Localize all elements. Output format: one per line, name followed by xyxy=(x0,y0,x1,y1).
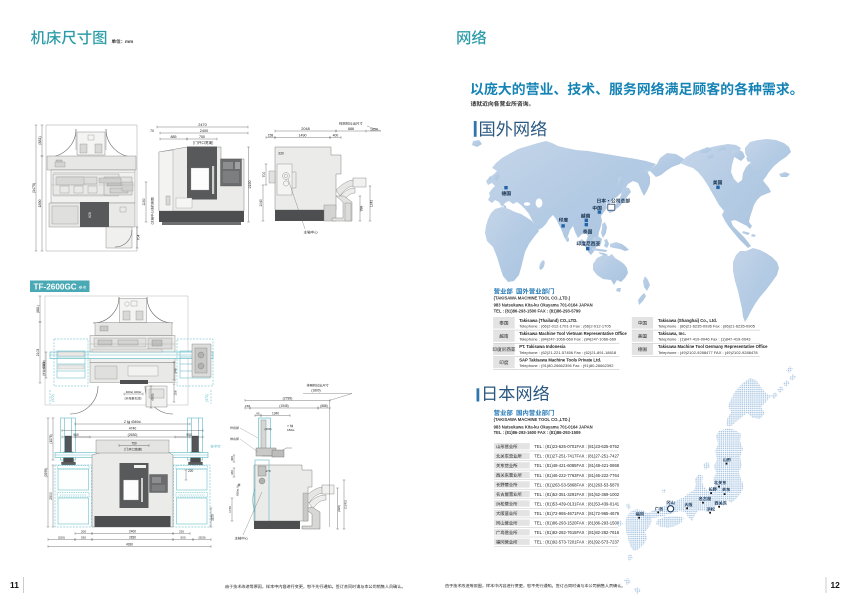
svg-text:200: 200 xyxy=(81,530,86,534)
svg-text:TEL : (81)53-439-0131: TEL : (81)53-439-0131 xyxy=(534,501,577,506)
svg-text:Takisawa (Thailand) CO.,LTD.: Takisawa (Thailand) CO.,LTD. xyxy=(519,318,577,323)
svg-text:(200): (200) xyxy=(264,427,271,431)
svg-text:950: 950 xyxy=(186,433,192,437)
svg-text:2830: 2830 xyxy=(129,536,136,540)
svg-text:(686): (686) xyxy=(320,404,327,408)
svg-text:(1076): (1076) xyxy=(49,434,53,443)
svg-text:180st.: 180st. xyxy=(287,428,295,432)
svg-text:1150: 1150 xyxy=(210,514,214,521)
svg-text:FAX : (81)263-53-5870: FAX : (81)263-53-5870 xyxy=(577,482,620,487)
svg-text:400st 400st: 400st 400st xyxy=(126,390,142,394)
svg-text:230: 230 xyxy=(179,530,184,534)
svg-text:FAX : (81)46-222-7764: FAX : (81)46-222-7764 xyxy=(577,473,620,478)
svg-text:TEL : (81)46-222-7763: TEL : (81)46-222-7763 xyxy=(534,473,577,478)
svg-text:65: 65 xyxy=(256,412,260,416)
svg-text:TEL : (81)263-53-5868: TEL : (81)263-53-5868 xyxy=(534,482,577,487)
svg-text:SAP Takisawa Machine Tools Pri: SAP Takisawa Machine Tools Private Ltd. xyxy=(519,357,601,362)
svg-text:FAX : (81)86-293-1509: FAX : (81)86-293-1509 xyxy=(577,521,620,526)
svg-text:(881): (881) xyxy=(36,305,40,313)
svg-text:2048: 2048 xyxy=(301,127,309,131)
svg-text:(885): (885) xyxy=(150,393,154,400)
svg-text:11: 11 xyxy=(10,580,19,590)
svg-text:885: 885 xyxy=(171,135,177,139)
svg-text:400: 400 xyxy=(230,456,234,461)
svg-text:1890: 1890 xyxy=(38,200,42,208)
svg-text:X: X xyxy=(236,486,240,488)
svg-text:650st.: 650st. xyxy=(236,488,240,496)
svg-text:Z: Z xyxy=(124,420,126,424)
svg-text:(881): (881) xyxy=(38,136,42,144)
svg-text:TEL : (81)52-351-3291: TEL : (81)52-351-3291 xyxy=(534,492,577,497)
svg-text:(2630): (2630) xyxy=(128,433,138,437)
svg-text:(550): (550) xyxy=(198,536,205,540)
svg-text:686: 686 xyxy=(348,127,354,131)
svg-text:1150: 1150 xyxy=(142,198,146,205)
svg-text:12: 12 xyxy=(831,580,841,590)
svg-text:Takisawa, Inc.: Takisawa, Inc. xyxy=(658,331,686,336)
svg-text:TEL : (81)86-293-1600 FAX :: TEL : (81)86-293-1600 FAX : (81)86-293-1… xyxy=(494,430,582,435)
svg-text:158: 158 xyxy=(268,134,274,138)
svg-text:FAX : (81)92-573-7237: FAX : (81)92-573-7237 xyxy=(577,540,620,545)
svg-text:mm: mm xyxy=(125,39,133,44)
svg-text:TEL : (81)86-293-1520: TEL : (81)86-293-1520 xyxy=(534,521,577,526)
svg-text:400: 400 xyxy=(333,134,339,138)
svg-text:Telephone : (84)247-1066-669: Telephone : (84)247-1066-669 Fax : (84)2… xyxy=(519,337,617,342)
svg-text:2150: 2150 xyxy=(248,181,252,189)
svg-text:PT. Takisawa Indonesia: PT. Takisawa Indonesia xyxy=(519,344,566,349)
svg-text:330: 330 xyxy=(278,152,284,156)
svg-text:1740: 1740 xyxy=(228,506,232,513)
svg-text:(998): (998) xyxy=(337,505,341,512)
svg-text:750: 750 xyxy=(199,135,205,139)
svg-text:FAX : (81)52-369-1002: FAX : (81)52-369-1002 xyxy=(577,492,620,497)
svg-text:(TAKISAWA MACHINE TOOL CO.,LTD: (TAKISAWA MACHINE TOOL CO.,LTD.) xyxy=(494,296,571,301)
svg-text:2400: 2400 xyxy=(129,530,136,534)
svg-text:(520): (520) xyxy=(58,536,65,540)
svg-text:Takisawa (Shanghai) Co., Ltd.: Takisawa (Shanghai) Co., Ltd. xyxy=(658,318,717,323)
svg-text:(972): (972) xyxy=(205,394,209,401)
svg-text:158: 158 xyxy=(173,390,177,395)
svg-text:FAX : (81)23-625-0752: FAX : (81)23-625-0752 xyxy=(577,444,620,449)
svg-text:158: 158 xyxy=(245,404,250,408)
svg-text:2500: 2500 xyxy=(49,492,53,500)
svg-text:TEL : (81)27-251-7417: TEL : (81)27-251-7417 xyxy=(534,454,577,459)
svg-text:2400: 2400 xyxy=(200,129,208,133)
svg-text:TEL : (81)82-282-7615: TEL : (81)82-282-7615 xyxy=(534,530,577,535)
svg-text:Telephone : (91)80-26662396: Telephone : (91)80-26662396 Fax : (91)80… xyxy=(519,363,614,368)
svg-text:70: 70 xyxy=(150,129,154,133)
svg-text:628: 628 xyxy=(88,212,92,218)
svg-text:(3976): (3976) xyxy=(44,468,48,478)
svg-text:Telephone : (49)2102-9288477: Telephone : (49)2102-9288477 FAX : (49)2… xyxy=(658,350,758,355)
svg-text:Takisawa Machine Tool Germany: Takisawa Machine Tool Germany Representa… xyxy=(658,344,768,349)
svg-text:170: 170 xyxy=(265,469,270,473)
svg-text:(1945): (1945) xyxy=(279,404,288,408)
svg-text:Telephone : (1)847-419-0046: Telephone : (1)847-419-0046 Fax : (1)847… xyxy=(658,337,751,342)
svg-text:4740: 4740 xyxy=(129,427,137,431)
svg-text:TF-2600GC: TF-2600GC xyxy=(34,283,77,292)
svg-text:(3475): (3475) xyxy=(32,183,36,193)
svg-text:Telephone : (66)2-012-1701-3: Telephone : (66)2-012-1701-3 Fax : (66)2… xyxy=(519,323,611,328)
svg-text:(1800): (1800) xyxy=(311,389,320,393)
svg-text:(TAKISAWA MACHINE TOOL CO.,LTD: (TAKISAWA MACHINE TOOL CO.,LTD.) xyxy=(494,417,571,422)
svg-text:360: 360 xyxy=(230,470,234,475)
svg-text:1490: 1490 xyxy=(299,134,307,138)
svg-text:Telephone : (62)21-221-57456: Telephone : (62)21-221-57456 Fax : (62)2… xyxy=(519,350,617,355)
svg-text:FAX : (81)48-421-0868: FAX : (81)48-421-0868 xyxy=(577,463,620,468)
svg-text:(1242): (1242) xyxy=(343,500,347,509)
svg-text:348: 348 xyxy=(173,368,177,373)
svg-text:983 Natsukawa Kita-ku Okayama: 983 Natsukawa Kita-ku Okayama 701-0164 J… xyxy=(494,302,593,307)
svg-text:4040st.: 4040st. xyxy=(131,420,142,424)
svg-text:4930: 4930 xyxy=(126,543,133,547)
svg-text:700: 700 xyxy=(262,172,266,178)
svg-text:TEL : (81)23-625-0701: TEL : (81)23-625-0701 xyxy=(534,444,577,449)
svg-text:FAX : (81)53-439-0141: FAX : (81)53-439-0141 xyxy=(577,501,620,506)
svg-text:960: 960 xyxy=(73,433,79,437)
svg-text:998: 998 xyxy=(360,206,364,212)
svg-text:(972): (972) xyxy=(51,394,55,401)
svg-text:TEL : (81)92-573-7201: TEL : (81)92-573-7201 xyxy=(534,540,577,545)
svg-text:2103: 2103 xyxy=(36,349,40,357)
svg-text:(2789): (2789) xyxy=(283,396,293,400)
svg-text:500: 500 xyxy=(180,536,185,540)
svg-text:1340: 1340 xyxy=(272,412,279,416)
svg-text:750: 750 xyxy=(131,442,137,446)
svg-text:2470: 2470 xyxy=(198,123,206,127)
svg-text:FAX : (81)72-965-4676: FAX : (81)72-965-4676 xyxy=(577,511,620,516)
svg-text:220: 220 xyxy=(188,469,194,473)
svg-text:TEL : (81)86-293-1500 FAX :: TEL : (81)86-293-1500 FAX : (81)86-293-5… xyxy=(494,308,582,313)
svg-text:TEL : (81)72-965-4671: TEL : (81)72-965-4671 xyxy=(534,511,577,516)
svg-text:1040: 1040 xyxy=(259,199,263,207)
svg-text:FAX : (81)27-251-7427: FAX : (81)27-251-7427 xyxy=(577,454,620,459)
svg-text:FAX : (81)82-282-7616: FAX : (81)82-282-7616 xyxy=(577,530,620,535)
svg-text:530: 530 xyxy=(81,536,86,540)
svg-text:TEL : (81)48-421-6085: TEL : (81)48-421-6085 xyxy=(534,463,577,468)
svg-text:704: 704 xyxy=(137,235,141,241)
svg-text:983 Natsukawa Kita-ku Okayama: 983 Natsukawa Kita-ku Okayama 701-0164 J… xyxy=(494,424,593,429)
svg-text:Takisawa Machine Tool Vietnam: Takisawa Machine Tool Vietnam Representa… xyxy=(519,331,627,336)
svg-text:Telephone : (86)21-6235-0936: Telephone : (86)21-6235-0936 Fax : (86)2… xyxy=(658,323,756,328)
svg-text:1242: 1242 xyxy=(370,200,374,208)
